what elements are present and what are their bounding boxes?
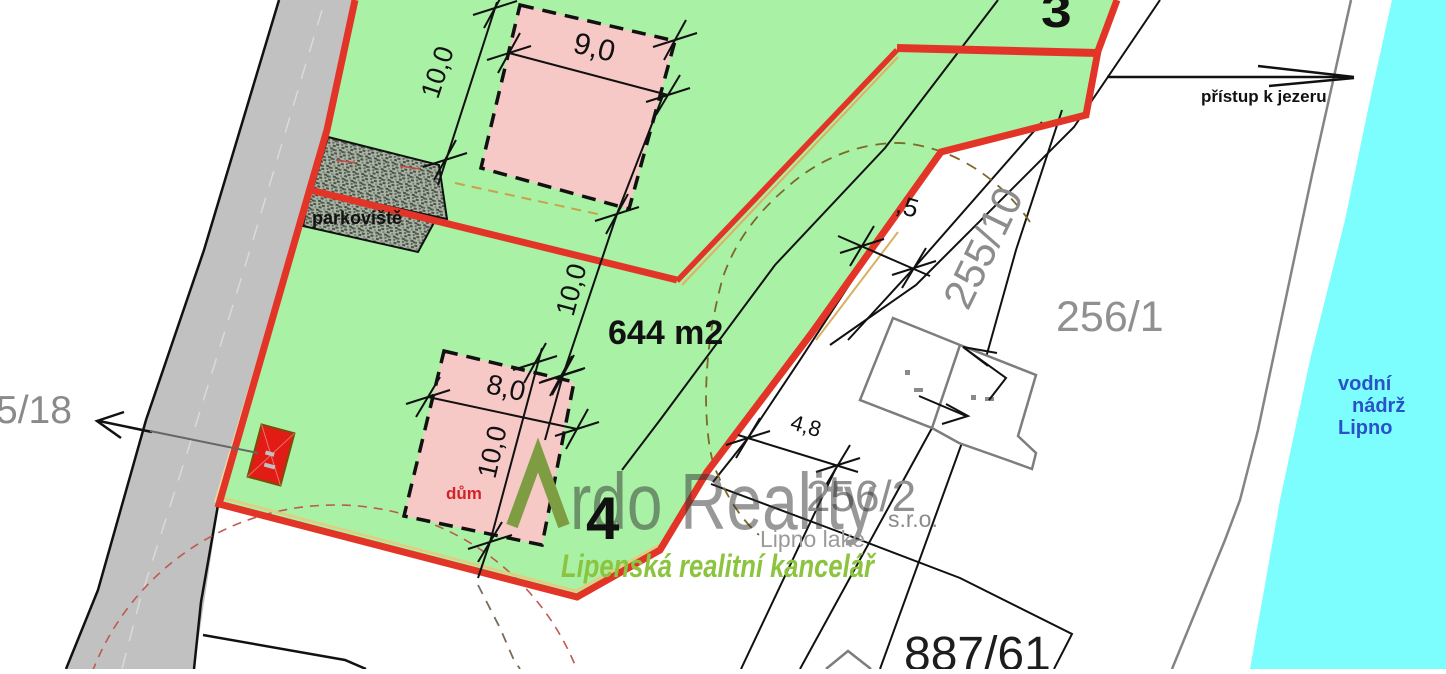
svg-text:Lipno: Lipno — [1338, 417, 1392, 439]
svg-text:256/1: 256/1 — [1056, 293, 1164, 341]
svg-text:nádrž: nádrž — [1352, 395, 1405, 417]
svg-text:přístup k jezeru: přístup k jezeru — [1201, 87, 1327, 106]
svg-text:dům: dům — [446, 484, 482, 503]
svg-text:3: 3 — [1041, 0, 1072, 37]
svg-text:parkoviště: parkoviště — [312, 208, 402, 228]
svg-text:Lipno lake: Lipno lake — [760, 526, 865, 552]
svg-text:887/61: 887/61 — [904, 628, 1051, 669]
svg-text:5/18: 5/18 — [0, 389, 72, 432]
svg-text:s.r.o.: s.r.o. — [888, 506, 938, 532]
svg-text:vodní: vodní — [1338, 373, 1393, 395]
svg-text:4: 4 — [586, 485, 620, 552]
svg-text:Lipenská realitní kancelář: Lipenská realitní kancelář — [561, 549, 877, 584]
svg-text:644 m2: 644 m2 — [608, 314, 723, 352]
